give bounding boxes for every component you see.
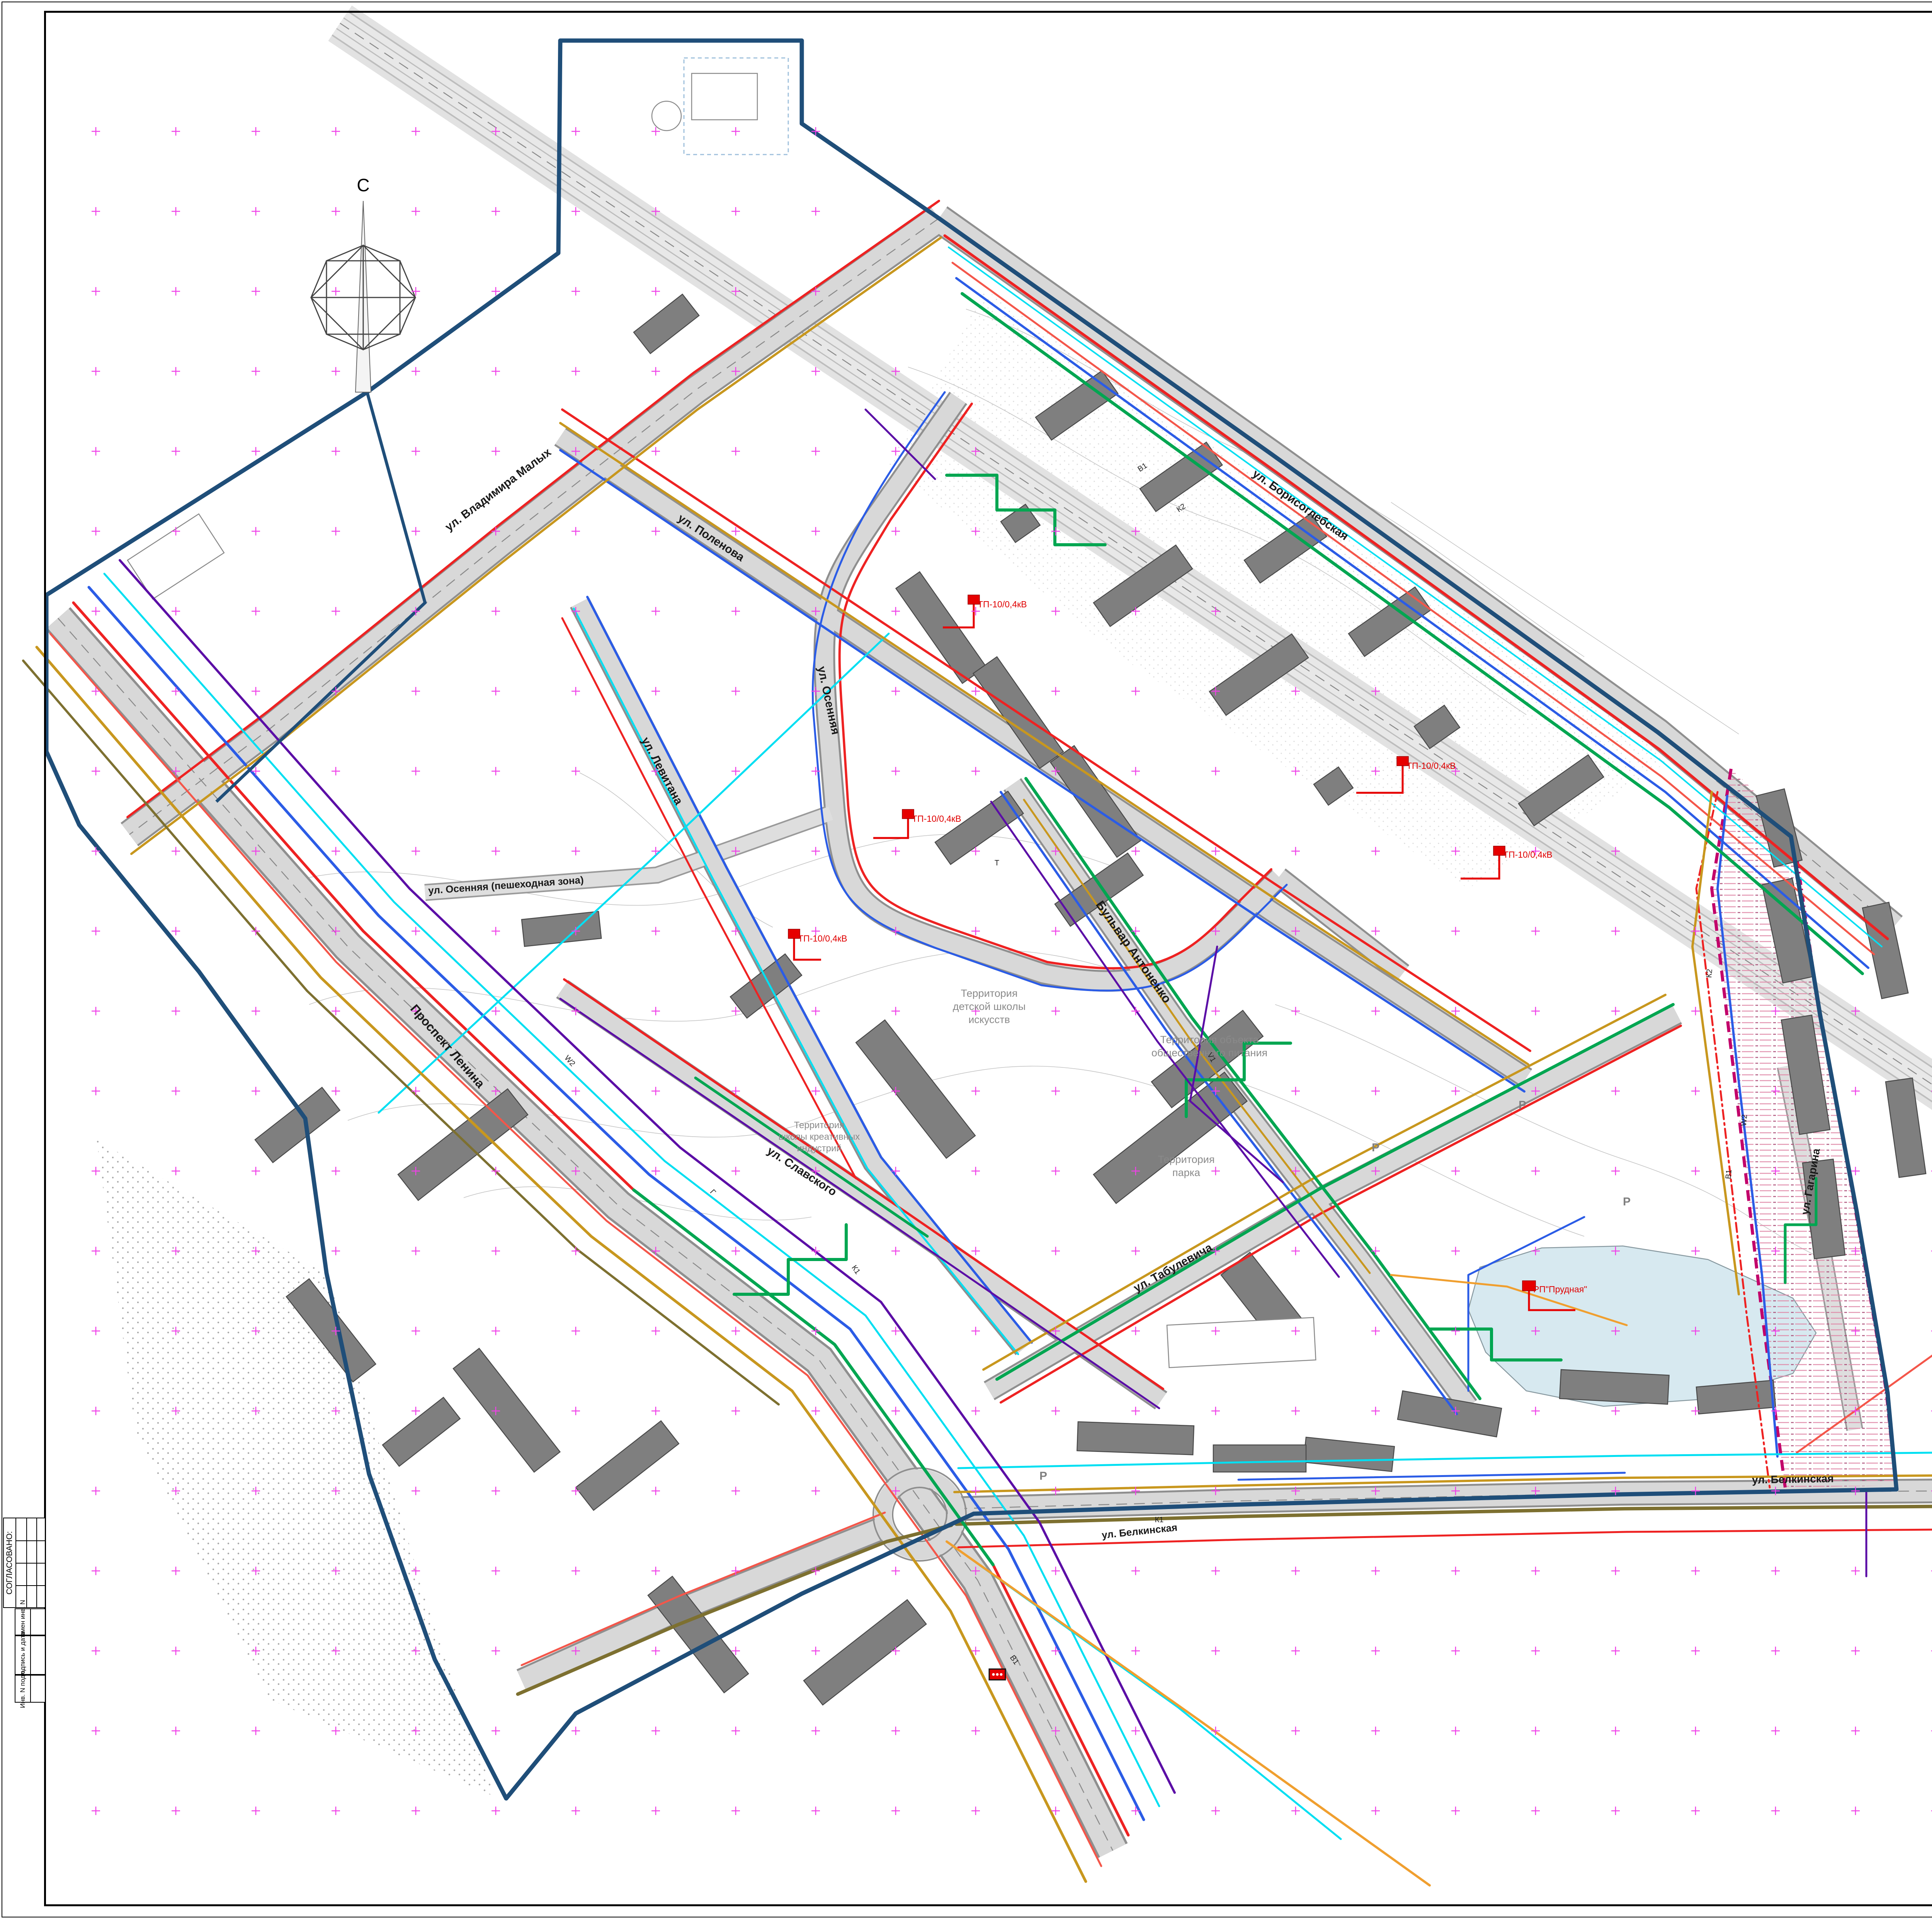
drawing-sheet: С Территориядетской школыискусствТеррито… <box>0 0 1932 1919</box>
sign-date-box: Подпись и дата <box>15 1635 46 1675</box>
inv-no-label: Инв. N подл. <box>19 1669 27 1708</box>
side-stamp: СОГЛАСОВАНО: Взамен инв. N Подпись и дат… <box>3 1518 46 1908</box>
inner-frame <box>44 11 1932 1906</box>
inv-no-box: Инв. N подл. <box>15 1675 46 1703</box>
approved-box: СОГЛАСОВАНО: <box>3 1518 46 1608</box>
approved-label: СОГЛАСОВАНО: <box>5 1531 14 1594</box>
